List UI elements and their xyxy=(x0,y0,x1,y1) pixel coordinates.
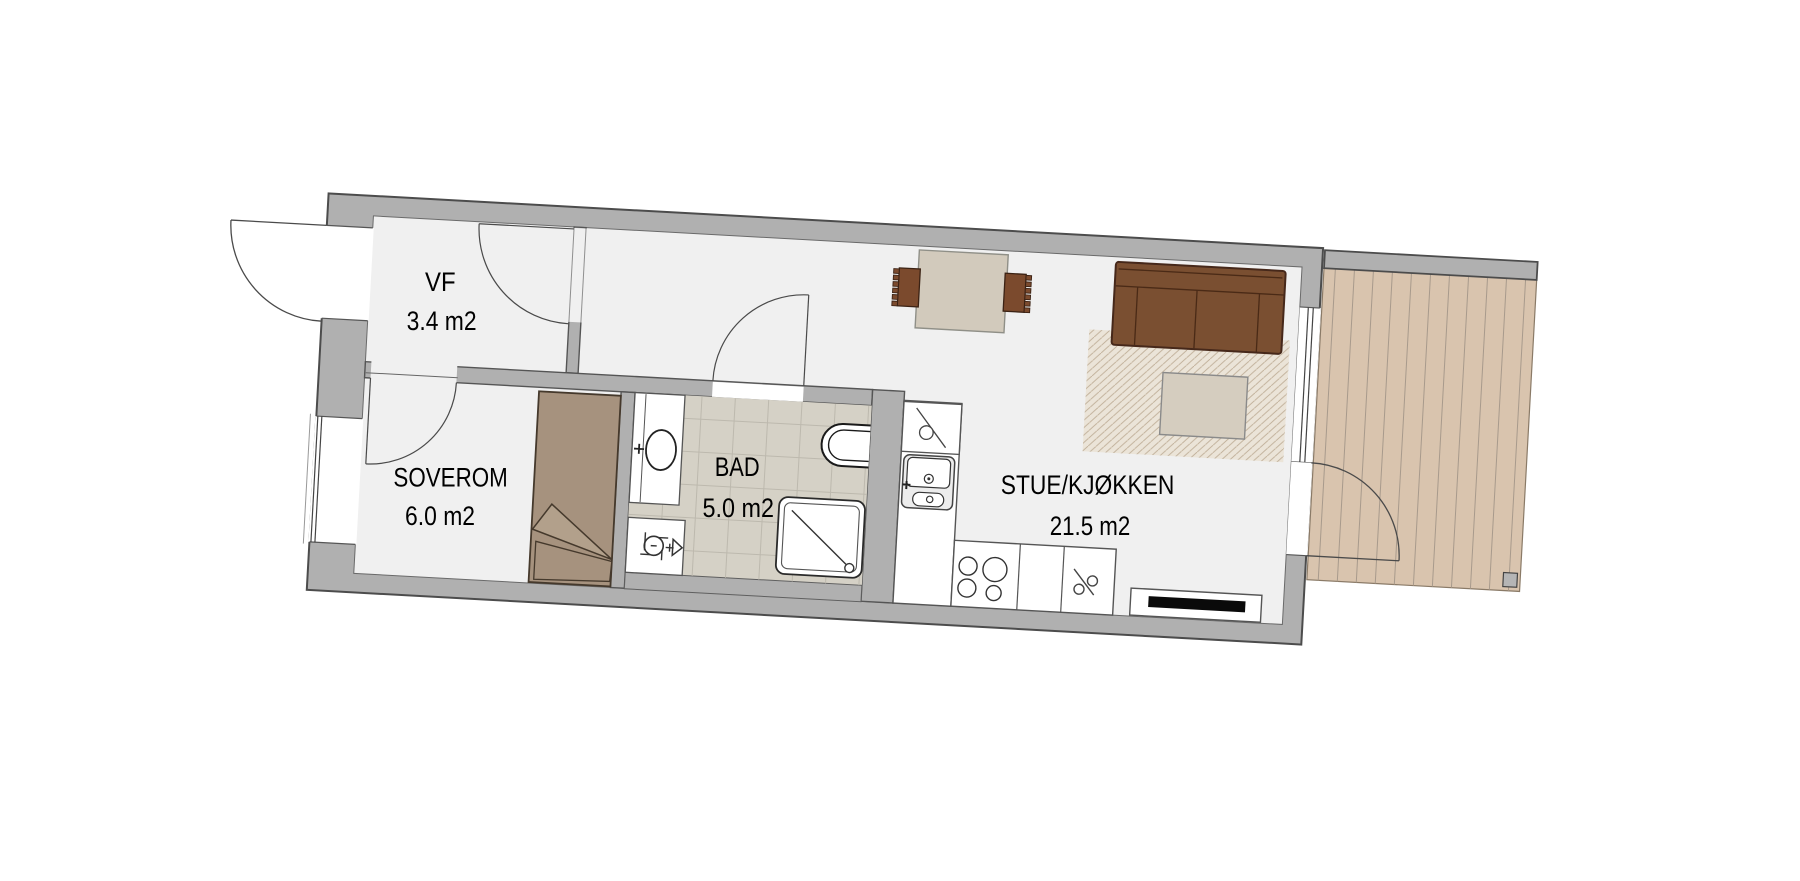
svg-text:SOVEROM: SOVEROM xyxy=(393,463,507,493)
svg-text:5.0 m2: 5.0 m2 xyxy=(703,493,775,523)
svg-text:STUE/KJØKKEN: STUE/KJØKKEN xyxy=(1001,470,1175,500)
svg-text:21.5 m2: 21.5 m2 xyxy=(1050,511,1131,541)
svg-text:3.4 m2: 3.4 m2 xyxy=(407,306,477,336)
svg-text:VF: VF xyxy=(425,267,456,297)
svg-text:BAD: BAD xyxy=(715,452,760,482)
svg-text:6.0 m2: 6.0 m2 xyxy=(405,501,475,531)
